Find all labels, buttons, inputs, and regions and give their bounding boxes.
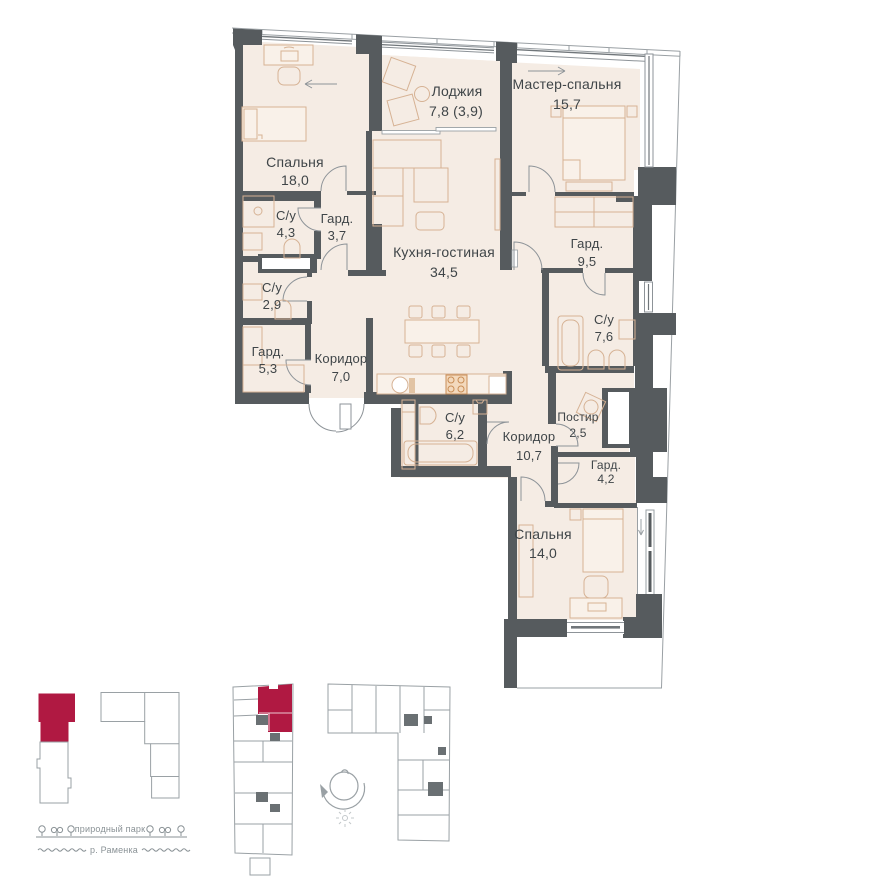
svg-text:7,0: 7,0 bbox=[332, 369, 351, 384]
svg-text:Гард.: Гард. bbox=[591, 458, 621, 472]
svg-text:Коридор: Коридор bbox=[315, 351, 368, 366]
svg-text:3,7: 3,7 bbox=[328, 228, 347, 243]
svg-text:34,5: 34,5 bbox=[430, 264, 458, 280]
svg-text:Кухня-гостиная: Кухня-гостиная bbox=[393, 244, 495, 260]
svg-text:С/у: С/у bbox=[594, 312, 614, 327]
svg-text:7,8 (3,9): 7,8 (3,9) bbox=[429, 103, 483, 119]
svg-text:2,5: 2,5 bbox=[569, 426, 586, 440]
svg-text:Лоджия: Лоджия bbox=[432, 83, 483, 99]
svg-text:С/у: С/у bbox=[276, 208, 296, 223]
svg-text:Мастер-спальня: Мастер-спальня bbox=[512, 76, 621, 92]
svg-text:4,3: 4,3 bbox=[277, 225, 296, 240]
svg-text:Спальня: Спальня bbox=[514, 526, 572, 542]
svg-text:С/у: С/у bbox=[262, 280, 282, 295]
svg-text:Спальня: Спальня bbox=[266, 154, 324, 170]
svg-text:Гард.: Гард. bbox=[321, 211, 354, 226]
svg-text:6,2: 6,2 bbox=[446, 427, 465, 442]
svg-text:10,7: 10,7 bbox=[516, 448, 542, 463]
svg-text:5,3: 5,3 bbox=[259, 361, 278, 376]
svg-text:4,2: 4,2 bbox=[597, 472, 614, 486]
svg-text:Постир: Постир bbox=[557, 410, 598, 424]
svg-text:14,0: 14,0 bbox=[529, 545, 557, 561]
svg-text:7,6: 7,6 bbox=[595, 329, 614, 344]
svg-text:С/у: С/у bbox=[445, 410, 465, 425]
svg-text:2,9: 2,9 bbox=[263, 297, 282, 312]
svg-text:Коридор: Коридор bbox=[503, 429, 556, 444]
svg-text:р. Раменка: р. Раменка bbox=[90, 845, 138, 855]
svg-text:15,7: 15,7 bbox=[553, 96, 581, 112]
svg-text:природный парк: природный парк bbox=[75, 824, 146, 834]
svg-text:18,0: 18,0 bbox=[281, 172, 309, 188]
svg-text:Гард.: Гард. bbox=[571, 236, 604, 251]
svg-text:9,5: 9,5 bbox=[578, 254, 597, 269]
svg-text:Гард.: Гард. bbox=[252, 344, 285, 359]
